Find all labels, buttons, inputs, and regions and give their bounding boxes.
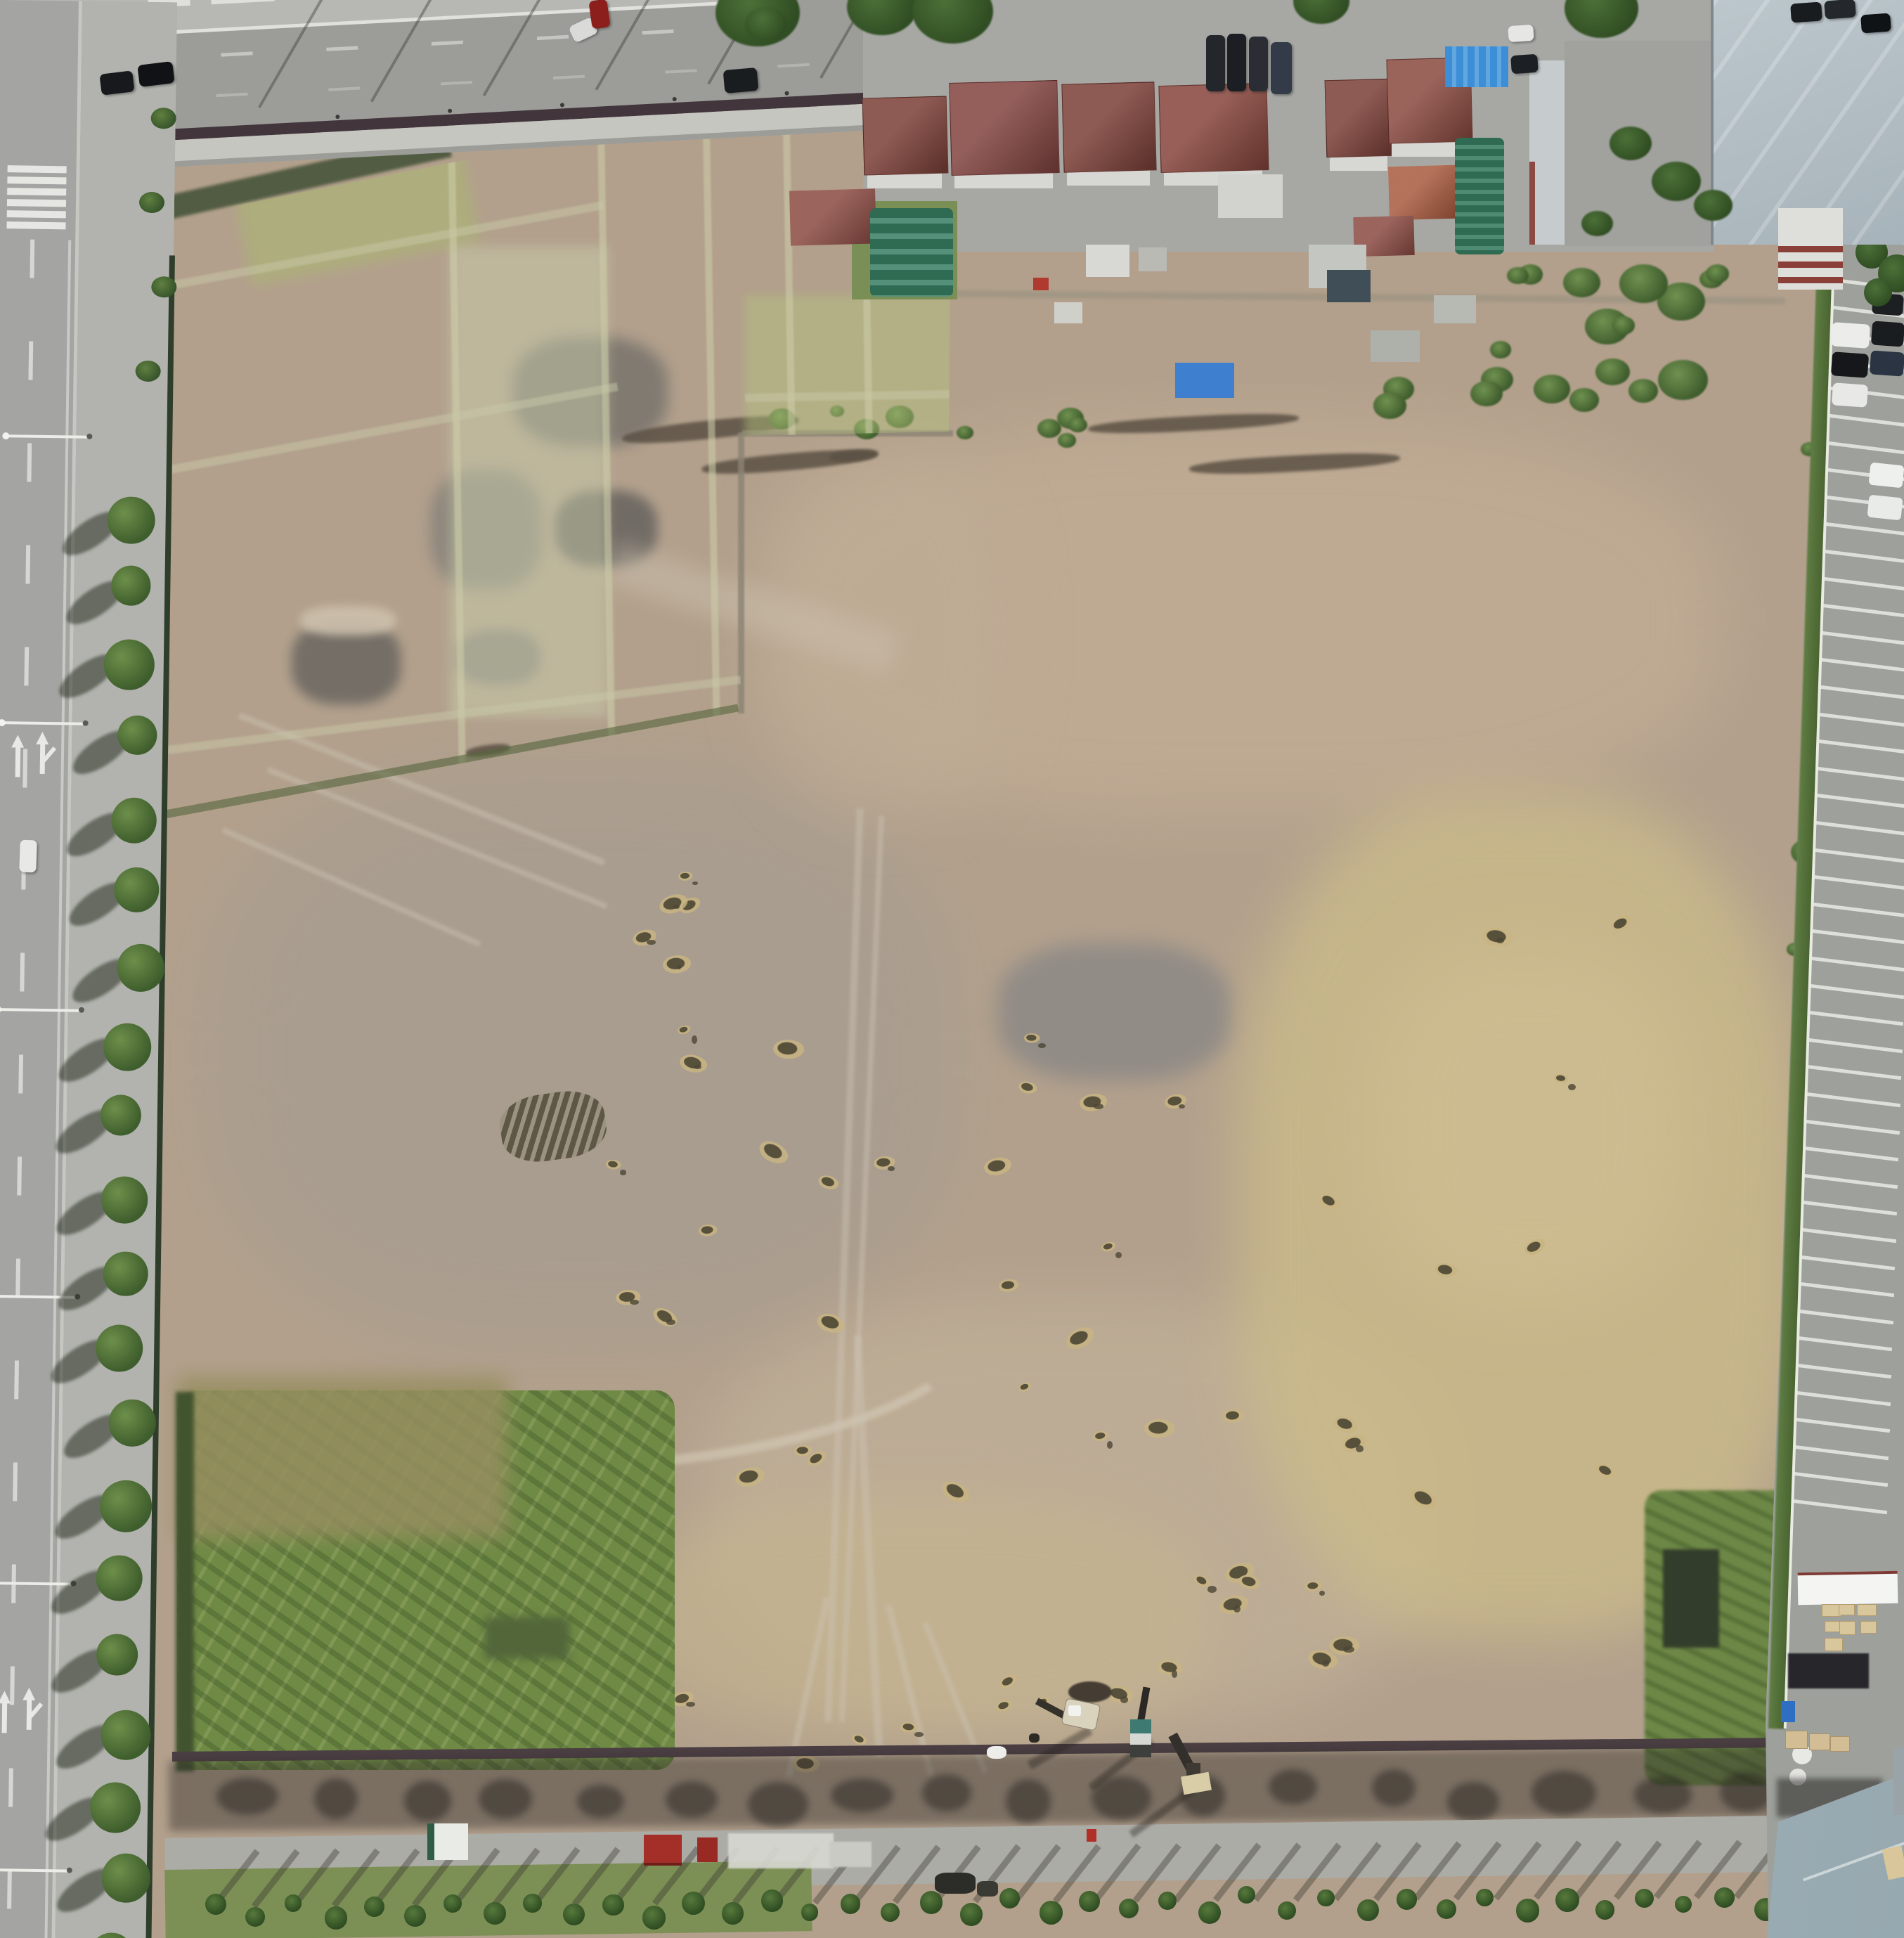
dark-materials — [977, 1881, 998, 1897]
excavators-layer — [0, 0, 1904, 1938]
excavator-body — [1130, 1733, 1151, 1745]
excavator-tracks — [1130, 1745, 1151, 1757]
excavator-shadow — [1027, 1726, 1092, 1769]
aerial-photo: Top-down drone photo of a large cleared … — [0, 0, 1904, 1938]
dark-materials — [935, 1873, 976, 1894]
white-sack — [987, 1746, 1006, 1759]
excavator-bucket — [1029, 1733, 1040, 1743]
excavator-body — [1181, 1772, 1212, 1795]
excavator-arm — [1137, 1687, 1151, 1724]
excavator-cab — [1068, 1705, 1081, 1716]
excavator-body — [1061, 1698, 1101, 1731]
excavator-body — [1130, 1719, 1151, 1733]
